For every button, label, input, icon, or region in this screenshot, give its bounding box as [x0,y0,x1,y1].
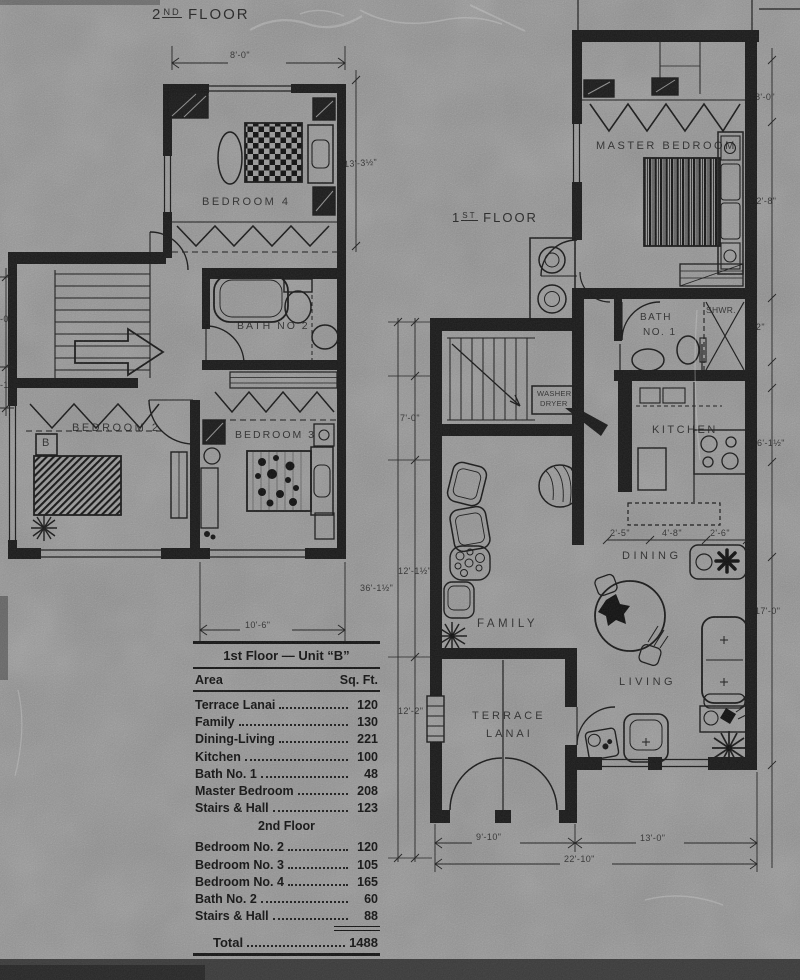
row-label: Stairs & Hall [195,909,269,923]
dim-left-12ft2: 12'-2" [398,706,423,716]
table-row: Dining-Living221 [193,731,380,748]
room-label-terrace-l1: TERRACE [472,710,546,722]
dot-leader [279,741,348,743]
row-value: 120 [352,840,378,854]
dim-top-8ft: 8'-0" [230,50,250,60]
dim-bottom-9ft10: 9'-10" [476,832,501,842]
flower-icon [716,550,738,572]
col-header-area: Area [195,673,223,687]
row-value: 120 [352,698,378,712]
total-value: 1488 [349,935,378,950]
dot-leader [273,918,348,920]
row-value: 60 [352,892,378,906]
row-label: Stairs & Hall [195,801,269,815]
dim-bottom-13ft: 13'-0" [640,833,665,843]
dot-leader [298,793,348,795]
scan-bottom-corner [0,965,205,980]
row-label: Master Bedroom [195,784,294,798]
row-value: 130 [352,715,378,729]
table-row: Bedroom No. 2120 [193,839,380,856]
room-label-living: LIVING [619,676,676,688]
washer-label: WASHER [537,389,571,398]
room-label-shwr: SHWR. [706,305,736,315]
room-label-bedroom3: BEDROOM 3 [235,429,316,441]
stove [694,430,746,474]
table-row: Bath No. 260 [193,890,380,907]
table-row: Master Bedroom208 [193,782,380,799]
room-label-bath1-l1: BATH [640,312,672,323]
dim-right-12ft8: 12'-8" [751,196,776,206]
table-row: Terrace Lanai120 [193,697,380,714]
total-row: Total1488 [193,932,380,953]
row-value: 48 [352,767,378,781]
counter-dashed [628,503,720,525]
dresser3-dark [203,420,225,444]
row-label: Bath No. 1 [195,767,257,781]
room-label-bath2: BATH NO 2 [237,320,310,332]
end-table [700,706,746,732]
dining-chair2 [638,643,663,666]
room-label-family: FAMILY [477,618,538,630]
area-table: 1st Floor — Unit “B” Area Sq. Ft. Terrac… [193,641,380,956]
master-bed [644,158,720,246]
room-label-kitchen: KITCHEN [652,424,718,436]
bed-tag: B [42,437,49,449]
plant-icon [31,515,57,541]
small-table [585,728,619,761]
table-title: 1st Floor — Unit “B” [193,644,380,666]
row-label: Bedroom No. 2 [195,840,284,854]
dim-left-7ft: 7'-0" [400,413,420,423]
room-label-master: MASTER BEDROOM [596,140,737,152]
table-row: Stairs & Hall88 [193,908,380,925]
chair-circle [204,448,220,464]
bed4 [245,123,302,182]
dim-kit-2ft6: 2'-6" [710,528,730,538]
dot-leader [279,707,348,709]
dim-right-17ft: 17'-0" [755,606,780,616]
dining-table [595,581,665,651]
sink1 [632,349,664,371]
toilet-bowl [285,291,311,323]
ladder-box [427,696,444,742]
family-chair1 [446,460,489,507]
table-header: Area Sq. Ft. [193,669,380,690]
dim-bottom-10ft: 10'-6" [245,620,270,630]
pebble-ottoman [450,546,490,580]
bed3 [247,451,311,511]
stair-arrow-1st [452,344,520,406]
dim-kit-2ft5: 2'-5" [610,528,630,538]
row-label: Terrace Lanai [195,698,275,712]
dim-left-overall-36ft: 36'-1½" [360,583,393,593]
dim-left-partial-a: -0" [0,314,12,324]
dim-left-partial-b: -10 [0,380,14,390]
dryer-label: DRYER [540,399,568,408]
dim-right-8ft: 8'-0" [755,92,775,102]
row-value: 123 [352,801,378,815]
row-label: Bath No. 2 [195,892,257,906]
armchair [624,714,668,762]
dim-left-12ft1: 12'-1½" [398,566,431,576]
stairs-2nd [55,270,150,378]
row-value: 221 [352,732,378,746]
room-label-bedroom4: BEDROOM 4 [202,196,291,208]
row-value: 105 [352,858,378,872]
table-row: Stairs & Hall123 [193,800,380,817]
nightstand3b [315,513,334,539]
plan2-interior [26,92,338,541]
centerpiece [598,594,630,626]
dot-leader [247,945,345,947]
room-label-bath1-l2: NO. 1 [643,327,677,338]
table-rule-bottom [193,953,380,956]
col-header-sqft: Sq. Ft. [340,673,378,687]
floor-plan-scan: 2ND FLOOR 8'-0" 13'-3½" BEDROOM 4 BATH N… [0,0,800,980]
dot-leader [288,867,348,869]
bed2 [34,456,121,515]
row-label: Kitchen [195,750,241,764]
nightstand3a [314,424,334,446]
dim-bottom-22ft10: 22'-10" [564,854,595,864]
family-chair3 [444,582,474,618]
dim-right-6ft: 6'-1½" [757,438,785,448]
dot-leader [261,776,348,778]
second-floor-heading: 2nd Floor [193,817,380,839]
nightstand-dark2 [313,187,335,215]
total-label: Total [213,935,243,950]
desk3 [201,468,218,528]
row-label: Bedroom No. 3 [195,858,284,872]
sink [312,325,338,349]
dot-leader [288,884,348,886]
plan1-thinlines [574,0,800,767]
hatched-planter [168,92,208,118]
dot-leader [288,849,348,851]
table-row: Bedroom No. 3105 [193,856,380,873]
table-row: Bedroom No. 4165 [193,873,380,890]
row-value: 165 [352,875,378,889]
dim-kit-4ft8: 4'-8" [662,528,682,538]
row-label: Bedroom No. 4 [195,875,284,889]
nightstand-dark [313,98,335,120]
room-label-terrace-l2: LANAI [486,728,533,740]
row-value: 100 [352,750,378,764]
row-label: Family [195,715,235,729]
dot-leader [245,759,348,761]
row-value: 208 [352,784,378,798]
table-row: Kitchen100 [193,748,380,765]
vent-box [584,80,614,97]
table-row: Bath No. 148 [193,765,380,782]
room-label-bedroom2: BEDROOM 2 [72,422,161,434]
vent-box2 [652,78,678,95]
row-value: 88 [352,909,378,923]
table-row: Family130 [193,714,380,731]
rug-oval [218,132,242,184]
dot-leader [261,901,348,903]
double-rule [334,926,380,931]
dot-leader [273,810,348,812]
row-label: Dining-Living [195,732,275,746]
first-floor-title: 1ST FLOOR [452,210,538,225]
dot-leader [239,724,348,726]
fridge [638,448,666,490]
room-label-dining: DINING [622,550,682,562]
second-floor-title: 2ND FLOOR [152,6,250,23]
dim-right-5ft2: 5'-2" [745,322,765,332]
